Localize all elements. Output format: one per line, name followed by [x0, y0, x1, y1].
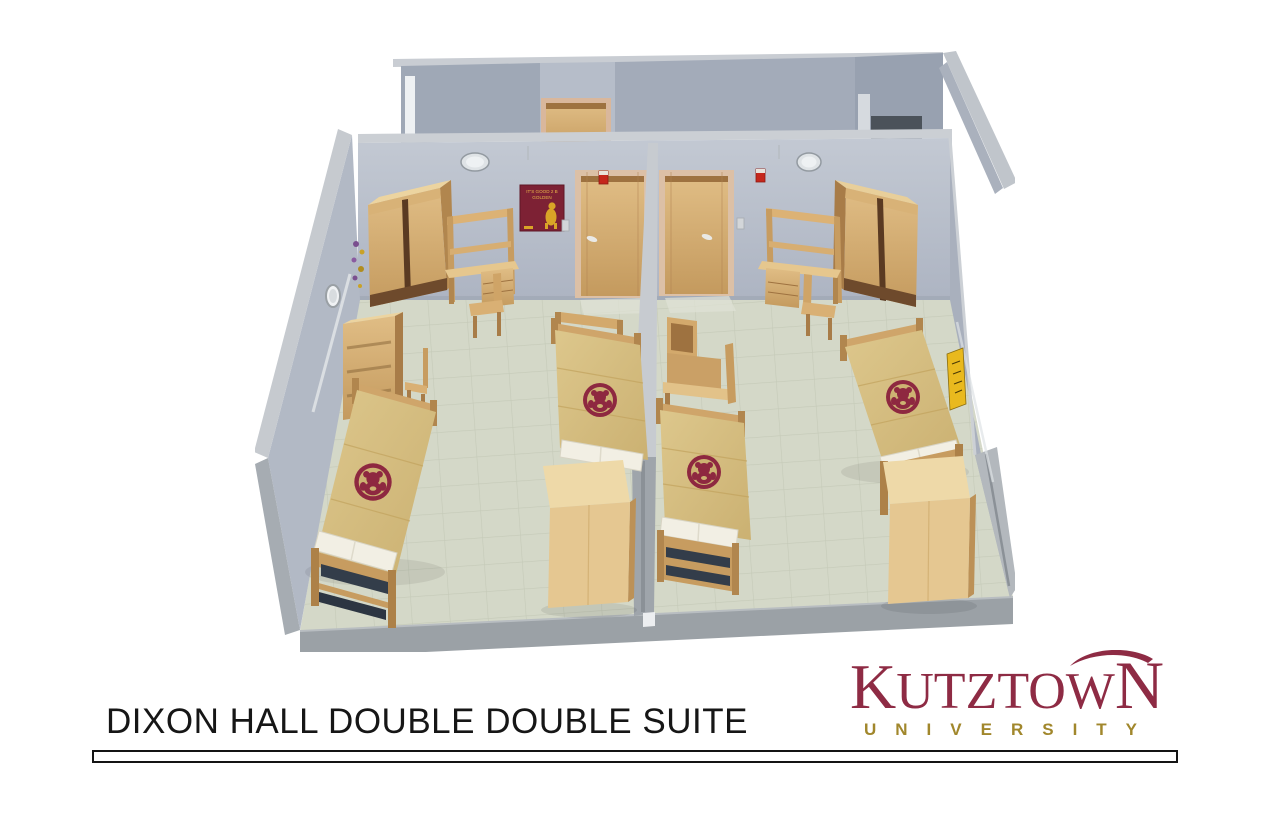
wardrobe-left-front: [541, 460, 637, 618]
light-switch-left: [562, 220, 569, 231]
room-door-left: [575, 170, 650, 298]
porthole-mirror: [326, 285, 340, 307]
wardrobe-right-front: [881, 456, 977, 614]
back-window-sliver: [405, 76, 415, 134]
bear-emblem: [886, 380, 920, 414]
wardrobe-right-back: [833, 180, 918, 307]
floorplan-rendering: IT'S GOOD 2 B GOLDEN: [255, 12, 1015, 652]
wall-mirror-right-glass: [802, 157, 817, 168]
divider-bar: [92, 750, 1178, 763]
poster-line2: GOLDEN: [532, 195, 551, 200]
caution-sign: [947, 348, 966, 410]
page: IT'S GOOD 2 B GOLDEN: [0, 0, 1280, 828]
poster-line1: IT'S GOOD 2 B: [526, 189, 558, 194]
logo-text: KUTZTOWN: [850, 650, 1164, 718]
bear-emblem: [583, 383, 617, 417]
fire-alarm-right: [756, 169, 765, 182]
room-door-right: [659, 170, 734, 296]
bear-emblem: [687, 455, 721, 489]
logo-letter-n: N: [1115, 650, 1164, 718]
light-switch-right: [737, 218, 744, 229]
logo-wordmark: KUTZTOWN: [848, 650, 1170, 718]
wall-hook-right: [778, 145, 780, 159]
bear-emblem: [354, 463, 391, 500]
bed-right-room-inner: [656, 398, 751, 595]
wardrobe-left-back: [368, 180, 454, 307]
fire-alarm-left: [599, 171, 608, 184]
logo-letter-k: K: [850, 651, 896, 718]
threshold-right-door: [665, 296, 736, 313]
bear-poster: IT'S GOOD 2 B GOLDEN: [520, 185, 564, 231]
plan-title: DIXON HALL DOUBLE DOUBLE SUITE: [106, 702, 748, 742]
logo-subtitle: UNIVERSITY: [864, 720, 1156, 740]
logo-letters-utztow: UTZTOW: [896, 663, 1115, 718]
wall-mirror-left-glass: [466, 157, 484, 168]
bed-left-room-inner: [551, 318, 648, 471]
divider-threshold: [643, 612, 655, 627]
wall-hook-left: [527, 146, 529, 160]
university-logo: KUTZTOWN UNIVERSITY: [848, 650, 1170, 746]
